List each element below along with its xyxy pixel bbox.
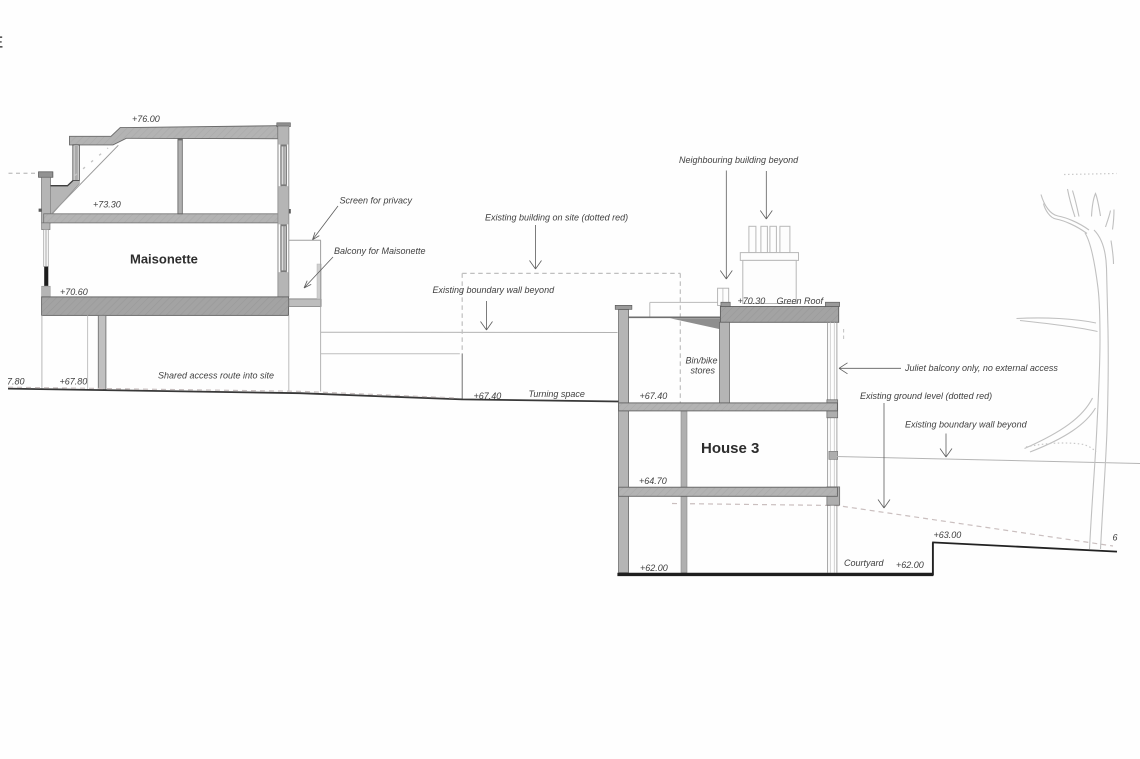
svg-text:Turning space: Turning space — [529, 389, 585, 399]
svg-text:Balcony for Maisonette: Balcony for Maisonette — [334, 246, 426, 256]
svg-text:Bin/bike: Bin/bike — [686, 356, 718, 366]
svg-text:+70.60: +70.60 — [60, 287, 88, 297]
svg-text:Existing building on site (dot: Existing building on site (dotted red) — [485, 213, 628, 223]
svg-text:Existing ground level (dotted: Existing ground level (dotted red) — [860, 391, 992, 401]
svg-text:Existing boundary wall beyond: Existing boundary wall beyond — [905, 419, 1028, 429]
svg-text:House 3: House 3 — [701, 440, 759, 457]
svg-text:+67.80: +67.80 — [60, 377, 88, 387]
svg-text:Shared access route into site: Shared access route into site — [158, 371, 274, 381]
svg-text:Green Roof: Green Roof — [777, 296, 825, 306]
svg-text:+62.00: +62.00 — [640, 563, 668, 573]
svg-text:6: 6 — [1113, 533, 1118, 543]
svg-text:+67.40: +67.40 — [640, 391, 668, 401]
svg-text:7.80: 7.80 — [7, 376, 25, 386]
svg-text:Juliet balcony only, no extern: Juliet balcony only, no external access — [904, 363, 1058, 373]
svg-text:+73.30: +73.30 — [93, 200, 121, 210]
svg-text:+70.30: +70.30 — [738, 296, 766, 306]
svg-text:Existing boundary wall beyond: Existing boundary wall beyond — [433, 285, 556, 295]
svg-text:+63.00: +63.00 — [934, 530, 962, 540]
svg-text:stores: stores — [691, 366, 716, 376]
svg-text:Courtyard: Courtyard — [844, 558, 885, 568]
svg-text:+62.00: +62.00 — [896, 560, 924, 570]
svg-text:E: E — [0, 35, 3, 52]
svg-text:+76.00: +76.00 — [132, 114, 160, 124]
svg-text:Maisonette: Maisonette — [130, 252, 198, 267]
svg-text:+67.40: +67.40 — [474, 391, 502, 401]
svg-text:+64.70: +64.70 — [639, 476, 667, 486]
svg-text:Screen for privacy: Screen for privacy — [340, 195, 413, 205]
svg-text:Neighbouring building beyond: Neighbouring building beyond — [679, 155, 799, 165]
